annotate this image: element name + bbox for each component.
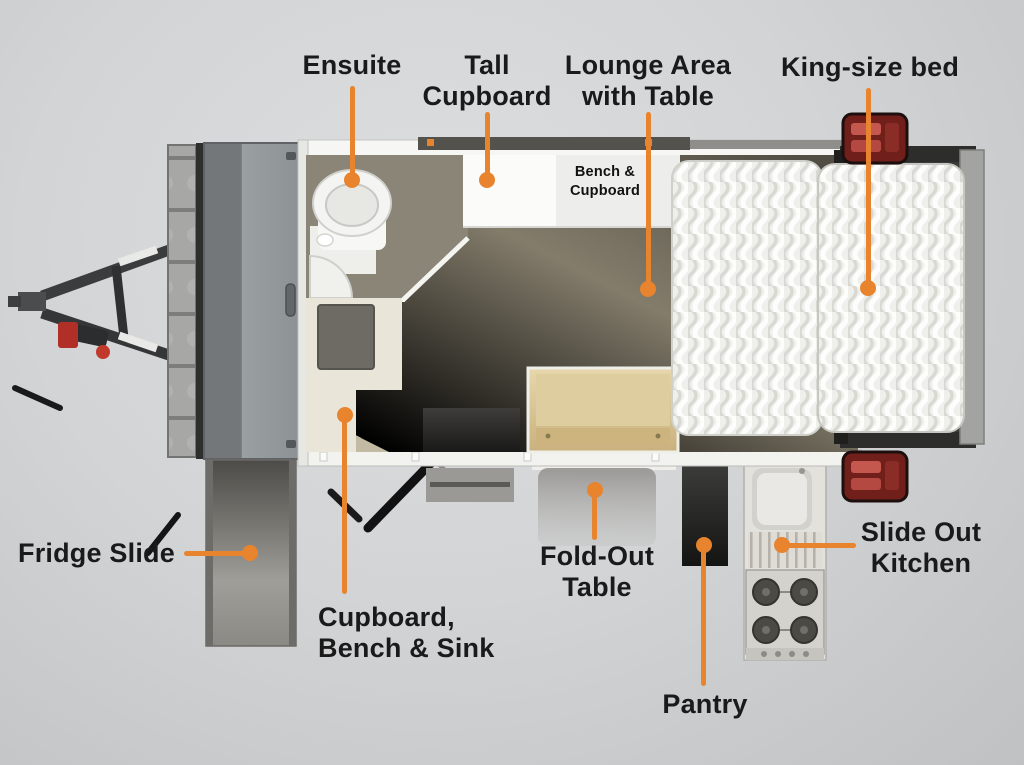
dot-tall-cupboard: [479, 172, 495, 188]
label-lounge-area: Lounge Area with Table: [548, 50, 748, 112]
entry-step: [331, 462, 514, 528]
dot-fridge-slide: [242, 545, 258, 561]
label-ensuite-text: Ensuite: [303, 50, 402, 80]
kitchen-sink: [752, 468, 812, 530]
slide-out-kitchen-shape: [744, 460, 826, 660]
tail-light-top: [843, 114, 907, 163]
leader-cupboard-bench-sink: [342, 418, 347, 594]
leader-tall-cupboard: [485, 112, 490, 180]
label-pantry: Pantry: [625, 689, 785, 720]
label-cupboard-bench-sink: Cupboard, Bench & Sink: [318, 602, 528, 664]
leader-fridge-slide: [184, 551, 248, 556]
label-slide-out-kitchen: Slide Out Kitchen: [841, 517, 1001, 579]
jockey-wheel: [58, 321, 110, 359]
leader-fold-out-table: [592, 492, 597, 540]
label-king-bed: King-size bed: [750, 52, 990, 83]
dot-king-bed: [860, 280, 876, 296]
front-storage-box: [204, 143, 302, 459]
dot-ensuite: [344, 172, 360, 188]
interior-step: [423, 408, 520, 452]
label-tall-cupboard: Tall Cupboard: [407, 50, 567, 112]
leader-ensuite: [350, 86, 355, 180]
dot-fold-out-table: [587, 482, 603, 498]
camper-floorplan-diagram: Bench & Cupboard Ensuite Tall Cupboard L…: [0, 0, 1024, 765]
fold-out-table-shape: [532, 458, 676, 546]
dot-cupboard-bench-sink: [337, 407, 353, 423]
label-fold-out-table: Fold-Out Table: [517, 541, 677, 603]
kitchen-stove: [746, 570, 824, 660]
dot-pantry: [696, 537, 712, 553]
leader-king-bed: [866, 88, 871, 288]
king-bed-mattresses: [672, 161, 964, 435]
leader-lounge-area: [646, 112, 651, 289]
hitch-drawbar: [8, 246, 172, 408]
lounge-seat: [528, 368, 678, 452]
leader-pantry: [701, 548, 706, 686]
tail-light-bottom: [843, 452, 907, 501]
dot-lounge-area: [640, 281, 656, 297]
label-fridge-slide: Fridge Slide: [18, 538, 188, 569]
dot-slide-out-kitchen: [774, 537, 790, 553]
